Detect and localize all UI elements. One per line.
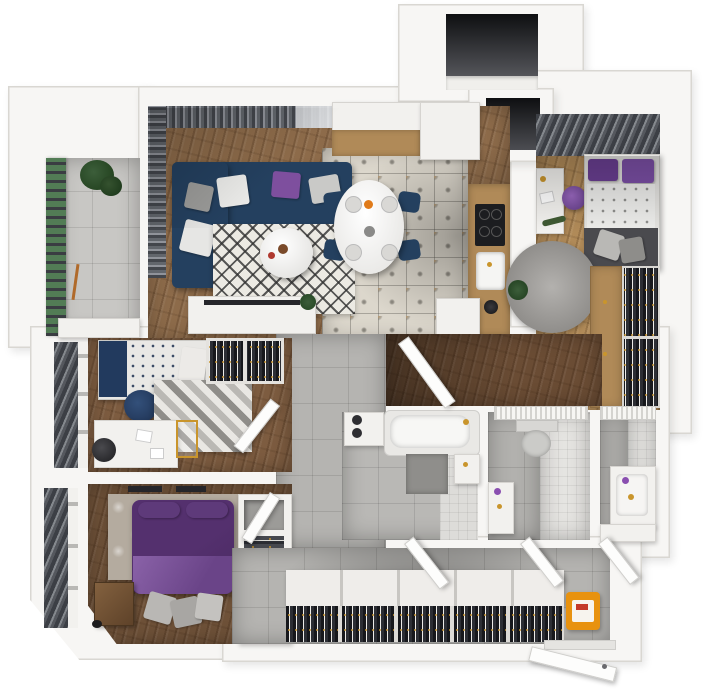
wardrobe-knob-2 <box>603 352 607 356</box>
plate-1 <box>345 196 362 213</box>
master-wall-tv <box>128 486 162 492</box>
wc-sink-faucet <box>497 504 502 509</box>
master-bed-fold <box>133 556 233 594</box>
sofa-pillow-gray <box>184 182 215 213</box>
master-pillow-1 <box>138 502 180 518</box>
bathtub-basin <box>390 415 470 448</box>
kitchen-bowl <box>484 300 498 314</box>
bed-pillow-purple-2 <box>622 159 654 183</box>
cooktop-burner-4 <box>491 226 502 237</box>
bedroom-window-blinds <box>536 114 660 156</box>
kitchen-sink <box>476 252 505 290</box>
cooktop-burner-1 <box>479 209 490 220</box>
sink-faucet <box>487 262 492 267</box>
master-window-frame <box>68 488 78 628</box>
kids-desk-chair <box>92 438 116 462</box>
cooktop-burner-2 <box>491 209 502 220</box>
wc-flowers <box>494 488 501 495</box>
footbench-cushion-2 <box>618 236 646 264</box>
hallway-wardrobe-top <box>286 570 564 606</box>
master-wall-tv-2 <box>176 486 206 492</box>
washer-dial-1 <box>352 415 362 425</box>
kids-window-frame <box>78 342 88 468</box>
entry-threshold <box>544 640 616 650</box>
bedroom-chair <box>562 186 586 210</box>
table-bowl <box>364 226 375 237</box>
kids-wardrobe-divider <box>243 338 247 384</box>
kids-pouf <box>124 390 158 422</box>
cooktop-burner-3 <box>479 226 490 237</box>
bathroom-sink-faucet <box>463 462 468 467</box>
coffee-table-decor-2 <box>268 252 275 259</box>
plate-2 <box>381 196 398 213</box>
rug-plant <box>508 280 528 300</box>
sideboard-plant <box>300 294 316 310</box>
sofa-pillow-purple <box>271 171 301 199</box>
washing-machine <box>344 412 384 446</box>
entry-door-handle <box>602 664 607 669</box>
toilet-bowl <box>521 430 551 457</box>
master-chest <box>94 582 134 626</box>
master-foot-cushion-3 <box>194 592 223 621</box>
bathroom-sink <box>454 454 480 484</box>
kitchen-counter-top <box>332 130 420 156</box>
storage-box-label-mark <box>576 604 588 610</box>
desk-lamp <box>540 176 546 182</box>
plate-3 <box>345 244 362 261</box>
wardrobe-divider <box>622 336 660 339</box>
kids-side-table <box>176 420 198 458</box>
bed-pillow-purple-1 <box>588 159 618 181</box>
plate-4 <box>381 244 398 261</box>
table-centerpiece <box>364 200 373 209</box>
wc-radiator <box>494 406 588 420</box>
living-curtains-left <box>148 106 166 278</box>
shaft-opening-large <box>446 14 538 76</box>
bathroom2-flowers <box>622 477 629 484</box>
bed-duvet-patterned <box>587 184 655 228</box>
floor-plan-scene <box>0 0 723 700</box>
balcony-railing <box>46 158 66 336</box>
kitchen-tall-cabinet <box>420 102 480 160</box>
washer-dial-2 <box>352 428 362 438</box>
sofa-pillow-white-1 <box>216 174 250 208</box>
wardrobe-knob-1 <box>603 300 607 304</box>
bathtub-faucet <box>463 419 469 425</box>
bathroom2-faucet <box>628 494 634 500</box>
master-shoes <box>92 620 102 628</box>
kids-desk-paper-red <box>150 448 164 459</box>
kids-desk-paper <box>135 429 153 444</box>
kids-bed-pillow-white <box>178 346 208 383</box>
balcony-plant-leaf <box>100 176 122 196</box>
tv <box>204 300 300 305</box>
bathroom2-radiator <box>600 406 656 420</box>
balcony-bench <box>58 318 140 338</box>
shaft-sill <box>446 76 538 90</box>
master-pillow-2 <box>186 502 228 518</box>
hallway-wardrobe-dividers <box>286 606 564 642</box>
shower-mat <box>406 454 448 494</box>
coffee-table-decor <box>278 244 288 254</box>
kids-bed-blanket-navy <box>99 341 127 397</box>
